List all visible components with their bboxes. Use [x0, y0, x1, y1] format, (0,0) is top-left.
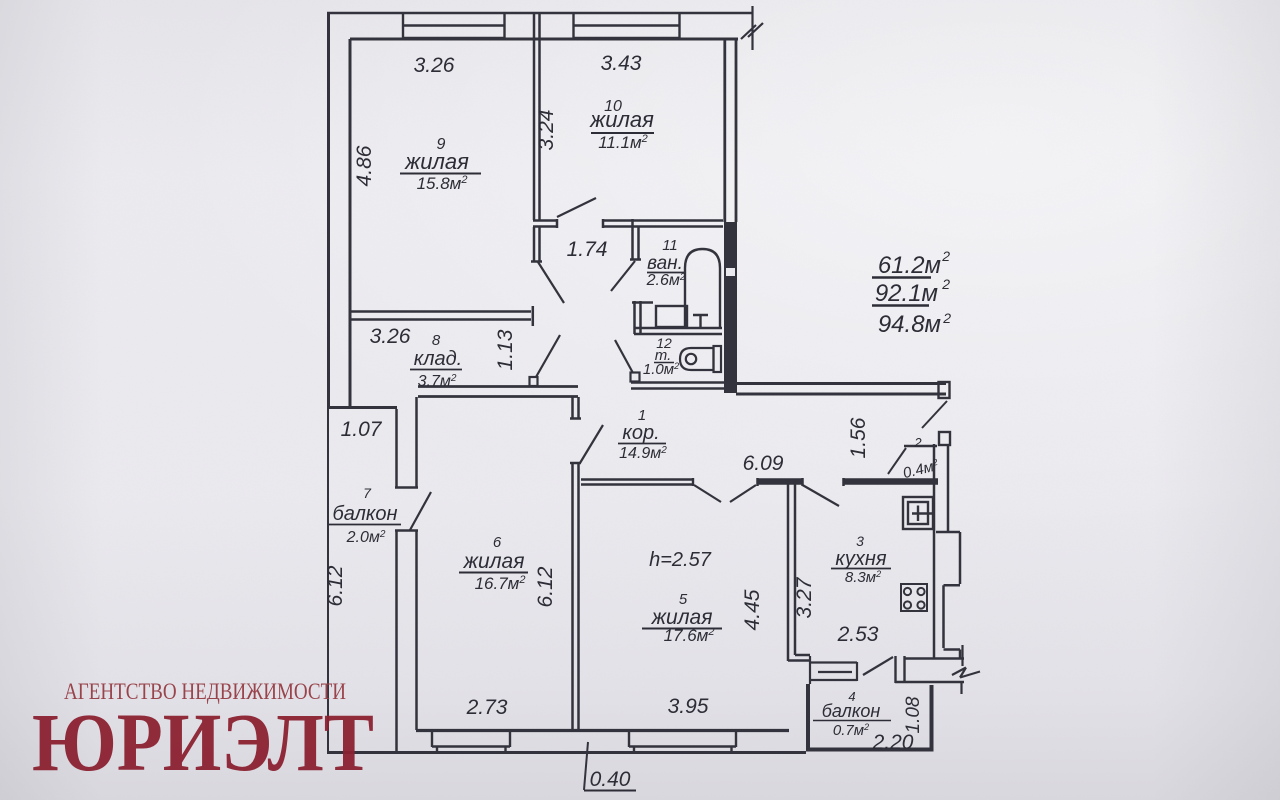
svg-text:1.07: 1.07 — [341, 418, 383, 441]
svg-text:3.43: 3.43 — [601, 52, 642, 75]
svg-text:2: 2 — [941, 276, 950, 292]
svg-text:11: 11 — [662, 237, 678, 254]
svg-text:ЮРИЭЛТ: ЮРИЭЛТ — [32, 696, 374, 788]
svg-text:3.24: 3.24 — [535, 110, 558, 151]
svg-text:2.6м2: 2.6м2 — [646, 272, 686, 289]
svg-text:6.09: 6.09 — [743, 452, 784, 475]
svg-text:2: 2 — [941, 248, 950, 264]
svg-text:2.53: 2.53 — [837, 623, 879, 646]
svg-text:0.40: 0.40 — [590, 768, 631, 791]
svg-text:1.74: 1.74 — [567, 238, 608, 261]
svg-text:7: 7 — [363, 485, 372, 501]
svg-text:61.2м: 61.2м — [878, 252, 941, 279]
svg-text:4.45: 4.45 — [741, 589, 764, 630]
svg-text:1.56: 1.56 — [847, 417, 870, 458]
svg-text:1.13: 1.13 — [494, 329, 517, 370]
svg-text:2: 2 — [942, 310, 951, 326]
svg-text:кухня: кухня — [835, 548, 886, 570]
svg-text:6.12: 6.12 — [534, 566, 557, 607]
svg-text:8: 8 — [432, 332, 441, 349]
svg-text:3.26: 3.26 — [414, 54, 455, 77]
svg-text:балкон: балкон — [822, 701, 881, 721]
svg-text:3.27: 3.27 — [793, 576, 816, 618]
svg-text:ван.: ван. — [647, 253, 683, 274]
svg-text:1.08: 1.08 — [903, 696, 924, 733]
svg-text:15.8м2: 15.8м2 — [417, 174, 468, 193]
svg-text:жилая: жилая — [589, 107, 654, 132]
svg-text:6: 6 — [493, 534, 502, 551]
svg-text:3.95: 3.95 — [668, 695, 709, 718]
svg-text:кор.: кор. — [622, 422, 659, 444]
svg-text:14.9м2: 14.9м2 — [619, 445, 667, 462]
svg-text:2.73: 2.73 — [466, 696, 508, 719]
svg-text:11.1м2: 11.1м2 — [598, 133, 648, 152]
svg-text:8.3м2: 8.3м2 — [845, 569, 881, 586]
svg-text:1.0м2: 1.0м2 — [643, 361, 679, 378]
svg-text:жилая: жилая — [463, 550, 525, 573]
svg-text:3.26: 3.26 — [370, 325, 411, 348]
svg-text:16.7м2: 16.7м2 — [475, 574, 526, 593]
svg-text:92.1м: 92.1м — [875, 280, 938, 307]
svg-text:балкон: балкон — [333, 503, 398, 525]
svg-text:клад.: клад. — [414, 348, 462, 370]
svg-text:0.7м2: 0.7м2 — [833, 722, 869, 739]
svg-text:6.12: 6.12 — [324, 565, 347, 606]
svg-text:3: 3 — [856, 533, 864, 549]
svg-text:жилая: жилая — [404, 149, 469, 174]
svg-text:94.8м: 94.8м — [878, 311, 941, 338]
svg-text:2.0м2: 2.0м2 — [346, 529, 386, 546]
svg-text:4.86: 4.86 — [353, 145, 376, 186]
svg-text:h=2.57: h=2.57 — [649, 549, 712, 571]
svg-text:2: 2 — [913, 435, 922, 450]
